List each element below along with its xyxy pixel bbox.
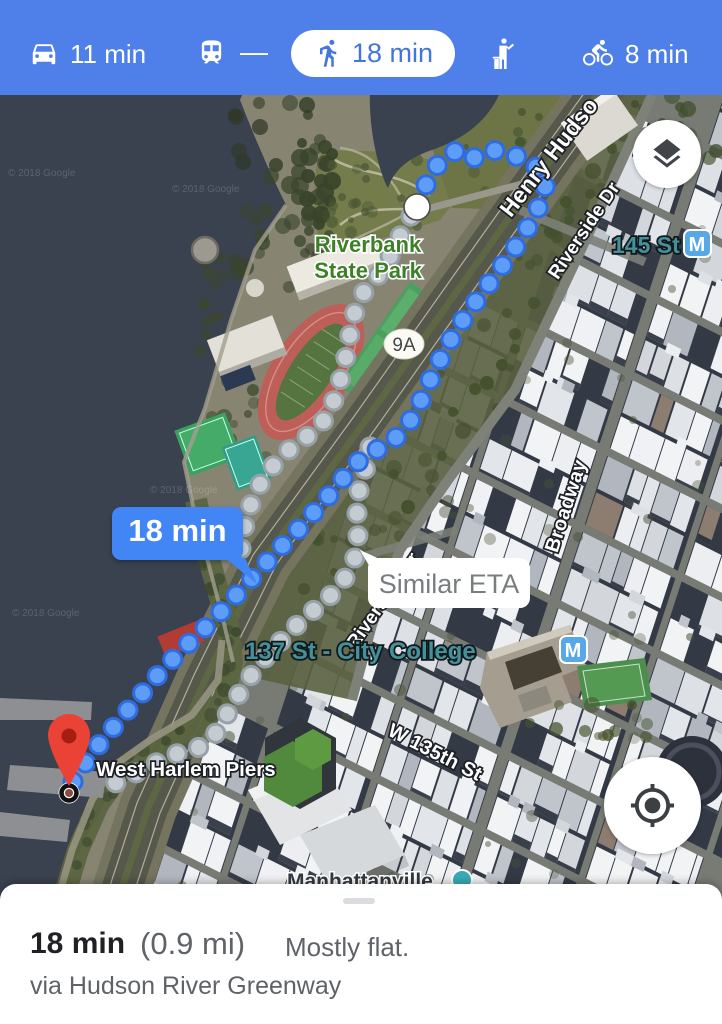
svg-text:West Harlem Piers: West Harlem Piers — [96, 758, 276, 781]
svg-text:Riverbank: Riverbank — [315, 232, 422, 257]
svg-text:© 2018 Google: © 2018 Google — [12, 608, 80, 619]
svg-text:145 St: 145 St — [612, 232, 680, 258]
svg-text:Similar ETA: Similar ETA — [379, 569, 520, 599]
svg-text:137 St - City College: 137 St - City College — [245, 638, 476, 665]
svg-text:© 2018 Google: © 2018 Google — [8, 168, 76, 179]
svg-text:M: M — [565, 640, 582, 662]
svg-text:State Park: State Park — [314, 258, 422, 283]
svg-text:9A: 9A — [392, 335, 416, 356]
svg-text:© 2018 Google: © 2018 Google — [150, 485, 218, 496]
svg-text:© 2018 Google: © 2018 Google — [172, 184, 240, 195]
svg-text:M: M — [689, 234, 706, 256]
